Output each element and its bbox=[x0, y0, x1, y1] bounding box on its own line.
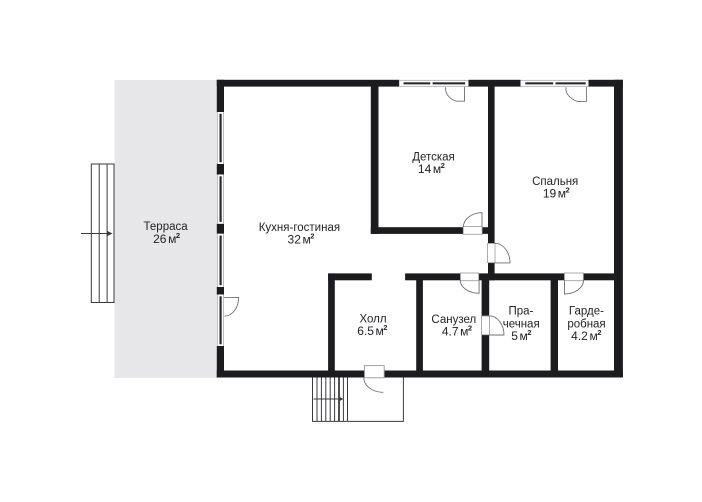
svg-text:Гарде-: Гарде- bbox=[569, 306, 604, 318]
svg-text:4.7м2: 4.7м2 bbox=[442, 323, 472, 338]
svg-text:4.2м2: 4.2м2 bbox=[571, 328, 601, 343]
svg-text:6.5м2: 6.5м2 bbox=[357, 323, 387, 338]
svg-text:Пра-: Пра- bbox=[508, 306, 533, 318]
svg-text:Терраса: Терраса bbox=[144, 221, 189, 233]
